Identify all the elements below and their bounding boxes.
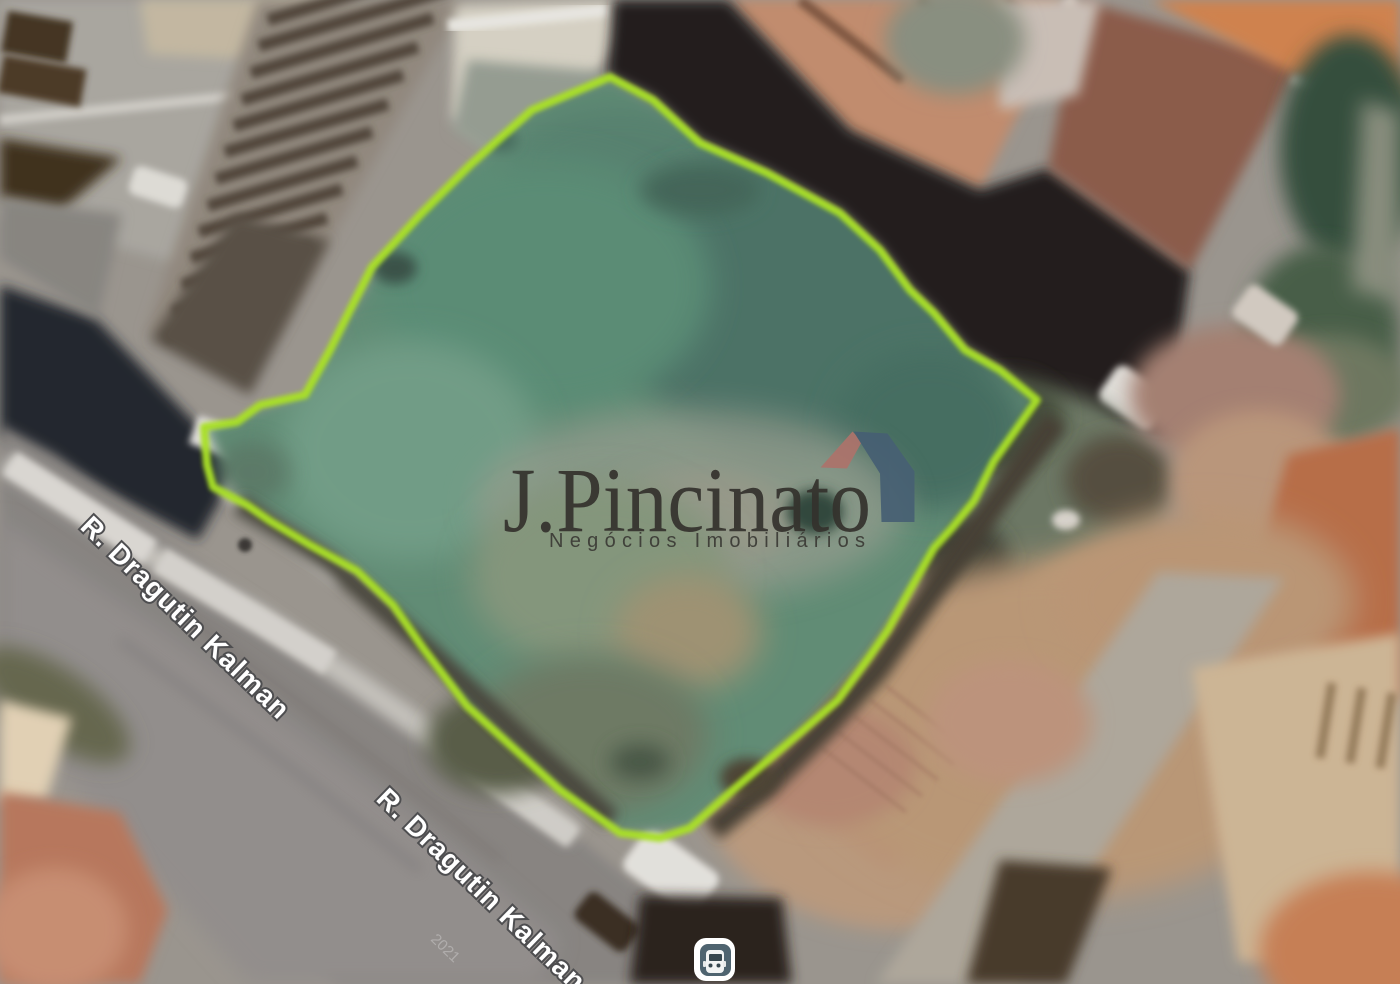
svg-text:Negócios Imobiliários: Negócios Imobiliários [549,530,867,552]
